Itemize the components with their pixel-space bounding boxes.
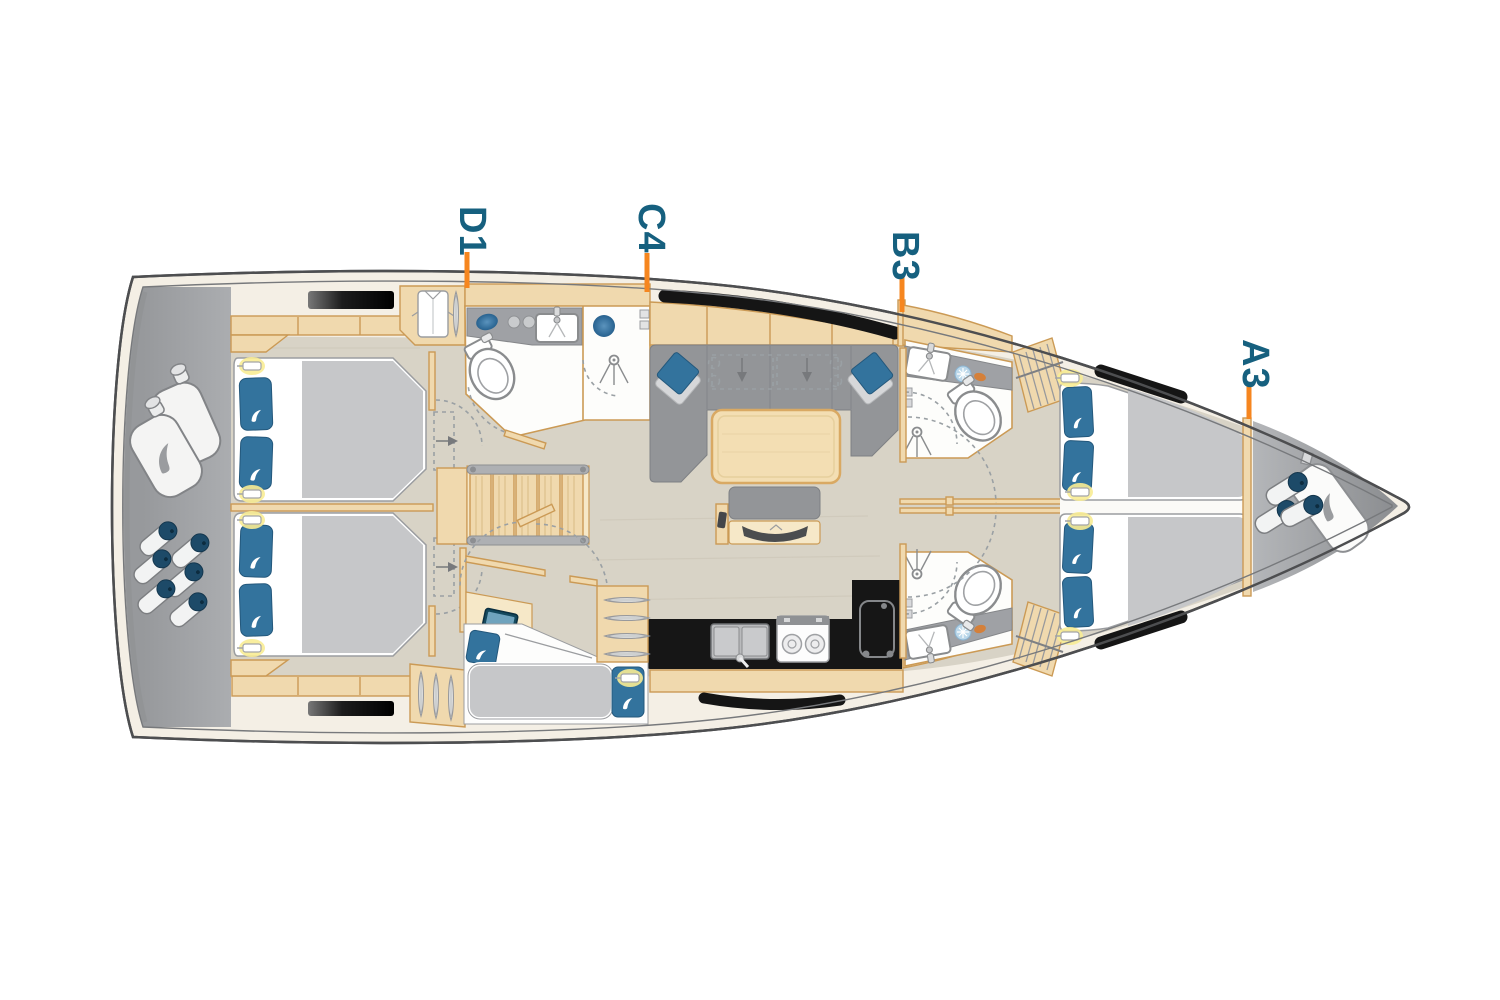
companionway-stairs [437, 465, 589, 545]
cabin-label-b3: B3 [884, 231, 926, 282]
cabin-label-d1: D1 [451, 206, 493, 257]
stair-rail [467, 536, 589, 545]
berth-mattress [468, 664, 613, 719]
bed-blanket [302, 361, 423, 498]
bed-pillow [1062, 576, 1094, 627]
yacht-layout-figure: D1 C4 B3 A3 [0, 0, 1500, 1000]
hanger-icon [419, 672, 424, 716]
salon-bench [716, 487, 820, 544]
salon-table [712, 410, 840, 483]
bed-pillow [1062, 522, 1094, 573]
hull-window [308, 291, 394, 309]
yacht-deck-plan: D1 C4 B3 A3 [0, 0, 1500, 1000]
bed-pillow [239, 436, 273, 489]
locker-shelf [231, 316, 427, 335]
stair-rail [467, 465, 589, 474]
stove [777, 616, 829, 662]
hull-window [308, 701, 394, 716]
stern-deck [124, 287, 232, 727]
galley-cabinets [650, 670, 903, 692]
forward-bulkhead [1243, 418, 1251, 596]
hanger-icon [454, 292, 459, 336]
hanger-icon [449, 676, 454, 720]
bed-blanket [302, 516, 423, 653]
hanger-icon [434, 674, 439, 718]
bed-pillow [1062, 386, 1094, 437]
cabin-label-c4: C4 [630, 203, 672, 254]
bed-pillow [239, 377, 273, 430]
hanger-icon [605, 652, 649, 657]
shower-mat [593, 315, 615, 337]
hanger-icon [605, 598, 649, 603]
bed-pillow [239, 583, 273, 636]
bed-pillow [239, 524, 273, 577]
bed-pillow [465, 630, 500, 667]
bow-locker [1252, 421, 1398, 592]
hanger-icon [605, 634, 649, 639]
hanger-icon [605, 616, 649, 621]
forward-cabin [1055, 369, 1251, 645]
shirt-icon [412, 291, 454, 337]
cabin-label-a3: A3 [1234, 339, 1276, 390]
locker-shelf [232, 676, 422, 696]
